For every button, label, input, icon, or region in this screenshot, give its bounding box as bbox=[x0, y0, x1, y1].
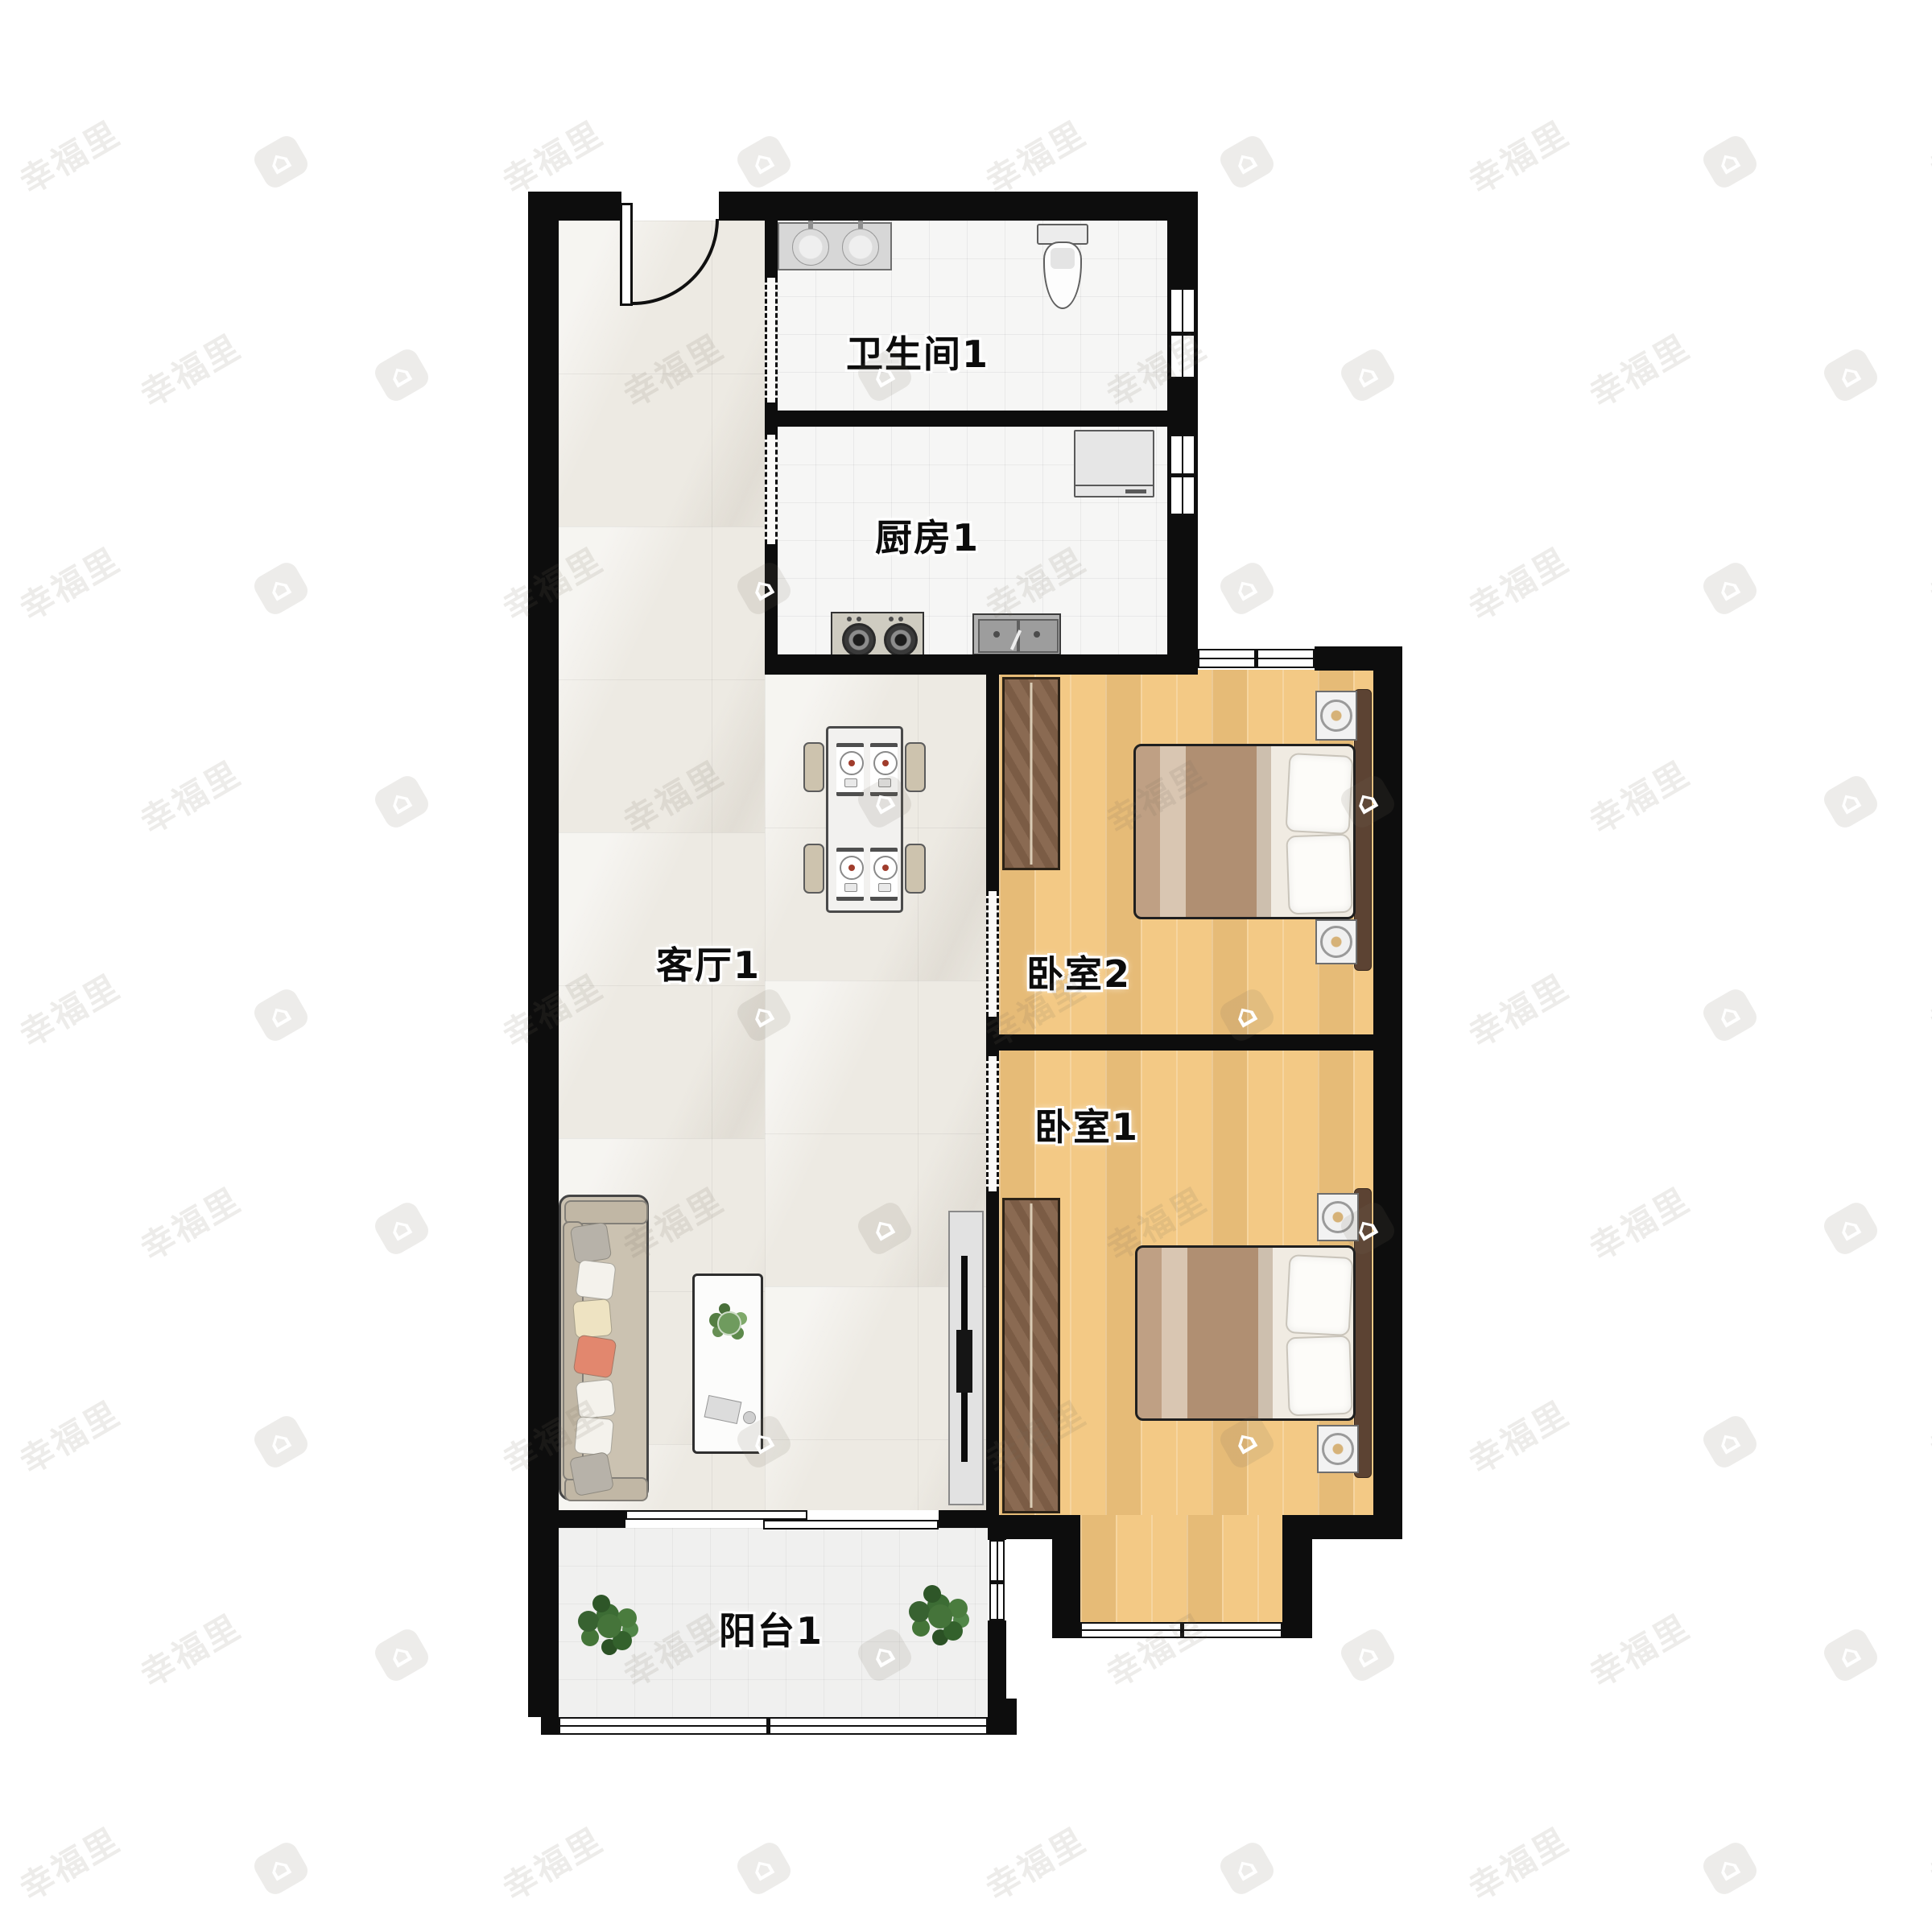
cup-icon bbox=[844, 778, 857, 787]
stove-knob bbox=[898, 617, 903, 621]
plate-food-icon bbox=[882, 865, 889, 871]
cup-icon bbox=[878, 883, 891, 892]
kitchen-window bbox=[1170, 435, 1195, 515]
stove-knob bbox=[889, 617, 894, 621]
plate-food-icon bbox=[848, 865, 855, 871]
dining-chair bbox=[803, 742, 824, 792]
toilet-seat bbox=[1051, 248, 1075, 269]
wall-top-right bbox=[719, 192, 1198, 221]
bed-pillow bbox=[1286, 1335, 1352, 1417]
flower-bouquet-icon bbox=[717, 1311, 741, 1335]
sofa-pillow bbox=[570, 1222, 613, 1265]
entry-door-leaf bbox=[620, 203, 633, 306]
room-label-bedroom-1: 卧室1 bbox=[1034, 1108, 1139, 1146]
fridge-handle bbox=[1125, 489, 1146, 493]
tv-cabinet bbox=[948, 1211, 984, 1505]
vanity-counter bbox=[778, 222, 892, 270]
wall-bedroom-divider bbox=[986, 1034, 1402, 1051]
fridge bbox=[1074, 430, 1154, 497]
window-mullion bbox=[989, 1580, 1005, 1584]
lamp-icon bbox=[1320, 700, 1352, 732]
bedroom-2-door-opening bbox=[986, 891, 999, 1017]
lamp-icon bbox=[1322, 1433, 1354, 1465]
bed-pillow bbox=[1286, 834, 1352, 915]
room-label-living: 客厅1 bbox=[656, 947, 761, 984]
balcony-sliding-door-panel-1 bbox=[625, 1510, 807, 1520]
sofa-pillow bbox=[576, 1379, 617, 1420]
wall-bay-right bbox=[1282, 1515, 1312, 1638]
bedroom-1-bay-floor bbox=[1080, 1515, 1282, 1622]
plate-food-icon bbox=[882, 760, 889, 766]
book-icon bbox=[704, 1395, 742, 1424]
balcony-right-window bbox=[989, 1540, 1005, 1620]
wall-bedrooms-left-upper bbox=[986, 670, 999, 891]
bed-pillow bbox=[1285, 1254, 1353, 1336]
window-mullion bbox=[1180, 1622, 1184, 1638]
sink-drain-icon bbox=[1034, 631, 1040, 638]
window-mullion bbox=[766, 1717, 770, 1735]
bed-bedroom-1 bbox=[1135, 1245, 1356, 1421]
balcony-bottom-window bbox=[559, 1717, 988, 1735]
wall-left bbox=[528, 192, 559, 1717]
stove-knob bbox=[857, 617, 861, 621]
cup-icon bbox=[878, 778, 891, 787]
lamp-icon bbox=[1320, 926, 1352, 958]
wall-bedrooms-left-lower bbox=[986, 1191, 999, 1515]
wall-right-wet-block bbox=[1167, 192, 1198, 671]
vanity-sink-basin bbox=[842, 229, 879, 266]
sofa-pillow bbox=[569, 1451, 614, 1496]
kitchen-sink bbox=[972, 613, 1061, 655]
wall-right bbox=[1373, 646, 1402, 1539]
stove bbox=[831, 612, 924, 657]
room-label-bathroom: 卫生间1 bbox=[846, 336, 989, 373]
room-label-balcony: 阳台1 bbox=[719, 1612, 824, 1649]
bedroom-1-door-opening bbox=[986, 1056, 999, 1191]
sofa-pillow bbox=[574, 1416, 614, 1456]
room-label-bedroom-2: 卧室2 bbox=[1026, 956, 1131, 993]
bedroom-2-window bbox=[1198, 649, 1315, 668]
wall-balcony-corner bbox=[988, 1699, 1017, 1735]
bedroom-1-bay-window bbox=[1080, 1622, 1282, 1638]
kitchen-door-opening bbox=[765, 435, 778, 544]
plant-leaves bbox=[597, 1614, 621, 1638]
wall-kitchen-bottom bbox=[765, 654, 1198, 675]
cup-icon bbox=[844, 883, 857, 892]
potted-plant-icon bbox=[906, 1583, 974, 1650]
fridge-door-line bbox=[1075, 485, 1153, 486]
wall-bay-left bbox=[1052, 1539, 1080, 1638]
sofa-pillow bbox=[572, 1298, 613, 1339]
wardrobe-bedroom-1 bbox=[1002, 1198, 1060, 1513]
dining-chair bbox=[803, 844, 824, 894]
nightstand bbox=[1315, 691, 1357, 741]
bathroom-window bbox=[1170, 288, 1195, 378]
vanity-sink-basin bbox=[792, 229, 829, 266]
nightstand bbox=[1317, 1193, 1359, 1241]
wall-living-balcony-left bbox=[528, 1510, 625, 1528]
dining-chair bbox=[905, 844, 926, 894]
bed-pillow bbox=[1285, 753, 1353, 835]
room-label-kitchen: 厨房1 bbox=[875, 519, 980, 556]
nightstand bbox=[1315, 919, 1357, 964]
lamp-icon bbox=[1322, 1201, 1354, 1233]
sofa-pillow bbox=[573, 1335, 617, 1379]
dining-table bbox=[826, 726, 903, 913]
window-mullion bbox=[1254, 649, 1258, 668]
coaster-icon bbox=[743, 1411, 756, 1424]
wardrobe-rail bbox=[1030, 1203, 1033, 1508]
sink-drain-icon bbox=[993, 631, 1000, 638]
plate-food-icon bbox=[848, 760, 855, 766]
bed-bedroom-2 bbox=[1133, 744, 1356, 919]
potted-plant-icon bbox=[576, 1592, 643, 1660]
sofa-pillow bbox=[575, 1259, 616, 1300]
sofa bbox=[559, 1195, 649, 1501]
stove-burner-icon bbox=[884, 623, 918, 657]
tv-mount bbox=[956, 1330, 972, 1393]
plant-leaves bbox=[928, 1604, 952, 1629]
dining-chair bbox=[905, 742, 926, 792]
wardrobe-rail bbox=[1030, 683, 1033, 865]
wardrobe-bedroom-2 bbox=[1002, 677, 1060, 870]
stove-knob bbox=[847, 617, 852, 621]
balcony-sliding-door-panel-2 bbox=[763, 1520, 939, 1529]
window-mullion bbox=[1170, 332, 1195, 336]
floor-plan: 卫生间1 厨房1 客厅1 卧室2 卧室1 阳台1 bbox=[0, 0, 1932, 1932]
wall-bath-kitchen-divider bbox=[765, 411, 1198, 427]
window-mullion bbox=[1170, 473, 1195, 477]
stove-burner-icon bbox=[842, 623, 876, 657]
nightstand bbox=[1317, 1425, 1359, 1473]
coffee-table bbox=[692, 1274, 763, 1454]
bathroom-door-opening bbox=[765, 278, 778, 402]
wall-living-balcony-right bbox=[939, 1510, 988, 1528]
wall-living-bath-upper bbox=[765, 221, 778, 278]
wall-balcony-right-upper bbox=[988, 1528, 1006, 1540]
